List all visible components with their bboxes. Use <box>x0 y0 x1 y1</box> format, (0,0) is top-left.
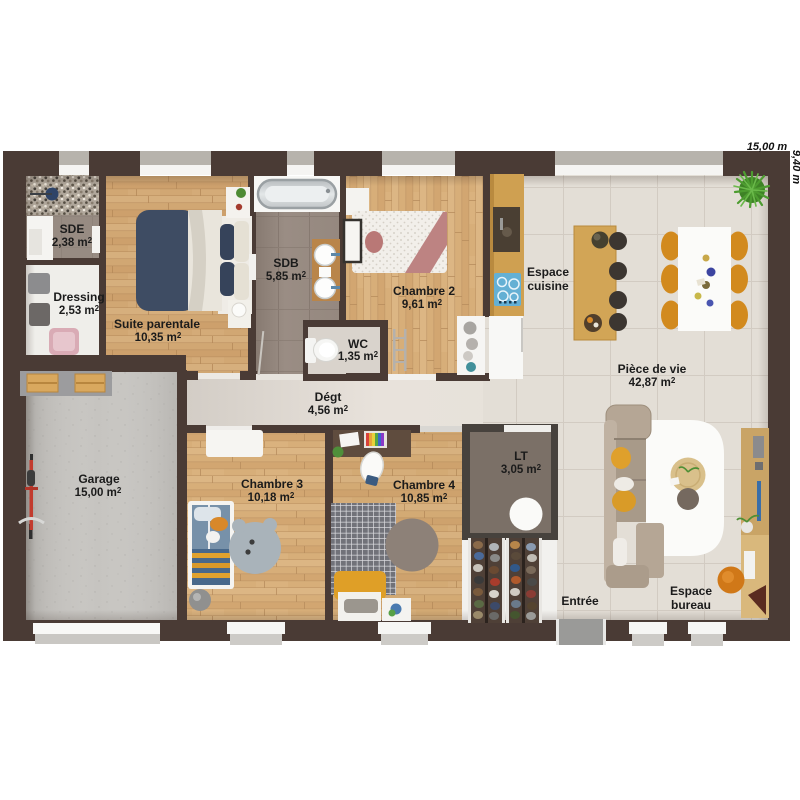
svg-text:Chambre 3: Chambre 3 <box>241 477 303 491</box>
svg-text:2,38 m2: 2,38 m2 <box>52 236 93 249</box>
svg-text:3,05 m2: 3,05 m2 <box>501 463 542 476</box>
svg-text:WC: WC <box>348 337 368 351</box>
svg-text:Suite parentale: Suite parentale <box>114 317 200 331</box>
svg-text:Chambre 4: Chambre 4 <box>393 478 455 492</box>
svg-text:Chambre 2: Chambre 2 <box>393 284 455 298</box>
svg-text:5,85 m2: 5,85 m2 <box>266 270 307 283</box>
svg-text:Espace: Espace <box>670 584 712 598</box>
svg-text:15,00 m2: 15,00 m2 <box>75 486 122 499</box>
svg-text:9,61 m2: 9,61 m2 <box>402 298 443 311</box>
svg-text:Dressing: Dressing <box>53 290 104 304</box>
svg-text:SDB: SDB <box>273 256 299 270</box>
svg-text:SDE: SDE <box>60 222 85 236</box>
svg-text:Espace: Espace <box>527 265 569 279</box>
svg-text:1,35 m2: 1,35 m2 <box>338 350 379 363</box>
svg-text:LT: LT <box>514 449 528 463</box>
svg-text:42,87 m2: 42,87 m2 <box>629 376 676 389</box>
svg-text:cuisine: cuisine <box>527 279 569 293</box>
svg-text:bureau: bureau <box>671 598 711 612</box>
svg-text:9,40 m: 9,40 m <box>790 150 800 184</box>
svg-text:Pièce de vie: Pièce de vie <box>618 362 687 376</box>
svg-text:Dégt: Dégt <box>315 390 342 404</box>
svg-text:15,00 m: 15,00 m <box>747 141 788 153</box>
svg-text:10,35 m2: 10,35 m2 <box>135 331 182 344</box>
svg-text:2,53 m2: 2,53 m2 <box>59 304 100 317</box>
svg-text:Entrée: Entrée <box>561 594 599 608</box>
svg-text:4,56 m2: 4,56 m2 <box>308 404 349 417</box>
svg-text:10,85 m2: 10,85 m2 <box>401 492 448 505</box>
svg-text:10,18 m2: 10,18 m2 <box>248 491 295 504</box>
svg-text:Garage: Garage <box>78 472 120 486</box>
